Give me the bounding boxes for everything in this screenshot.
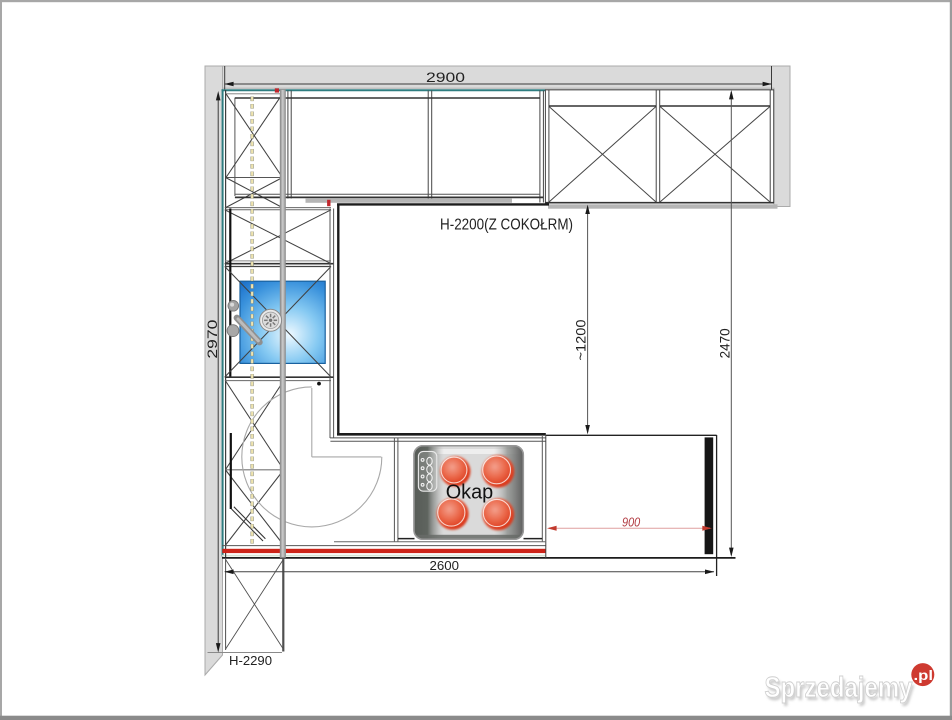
svg-text:Sprzedajemy: Sprzedajemy [765, 672, 913, 704]
svg-text:2970: 2970 [204, 319, 220, 358]
svg-text:H-2290: H-2290 [229, 653, 272, 668]
svg-text:2900: 2900 [426, 69, 465, 85]
svg-text:900: 900 [622, 515, 640, 529]
svg-text:2470: 2470 [718, 328, 733, 358]
svg-text:H-2200(Z COKOŁRM): H-2200(Z COKOŁRM) [440, 216, 573, 233]
svg-text:2600: 2600 [430, 558, 460, 573]
svg-text:.pl: .pl [914, 668, 934, 683]
svg-text:~1200: ~1200 [572, 319, 588, 360]
svg-text:Okap: Okap [446, 482, 494, 504]
